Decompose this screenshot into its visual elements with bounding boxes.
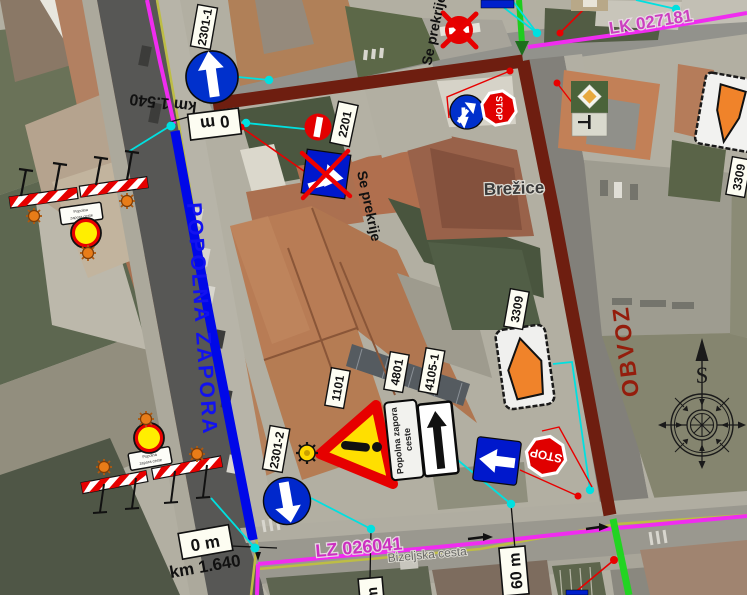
- svg-text:STOP: STOP: [494, 96, 504, 120]
- svg-text:0 m: 0 m: [364, 586, 383, 595]
- svg-text:Brežice: Brežice: [483, 178, 544, 199]
- svg-text:S: S: [696, 363, 709, 388]
- svg-text:0 m: 0 m: [199, 111, 230, 133]
- svg-text:60 m: 60 m: [506, 552, 526, 590]
